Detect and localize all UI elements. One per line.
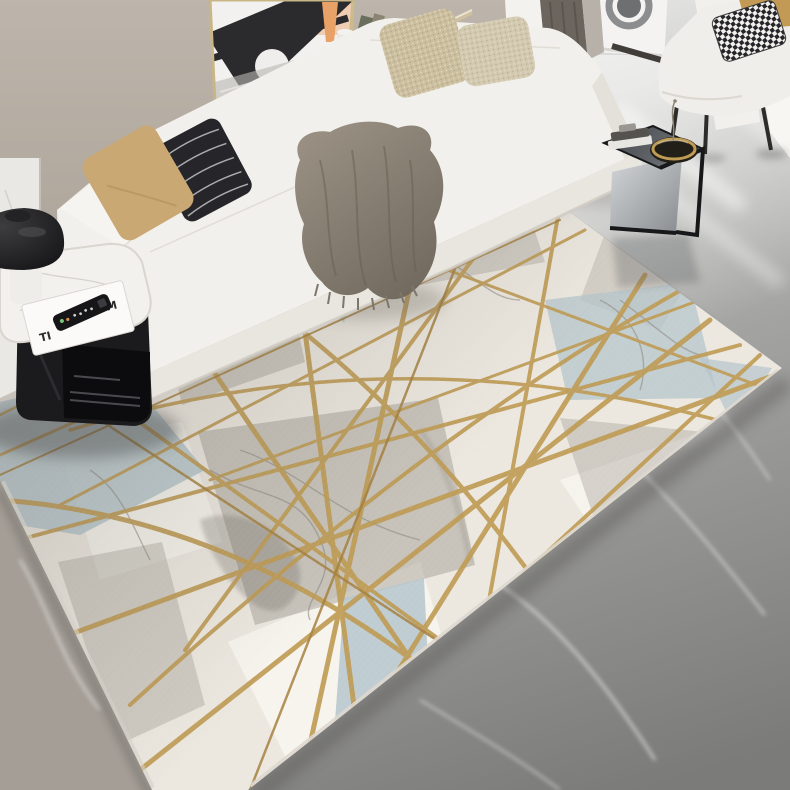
table-shelf-cavity (62, 344, 150, 422)
champagne-sequin-pillow-2 (455, 15, 537, 89)
living-room-scene: TI D M (0, 0, 790, 790)
ctable-reflection (612, 234, 700, 288)
washing-machine (595, 0, 668, 56)
throw-blanket (295, 122, 443, 300)
lamp-highlight (18, 227, 46, 237)
gold-rim-bowl (650, 137, 698, 163)
product-photo: TI D M (0, 0, 790, 790)
